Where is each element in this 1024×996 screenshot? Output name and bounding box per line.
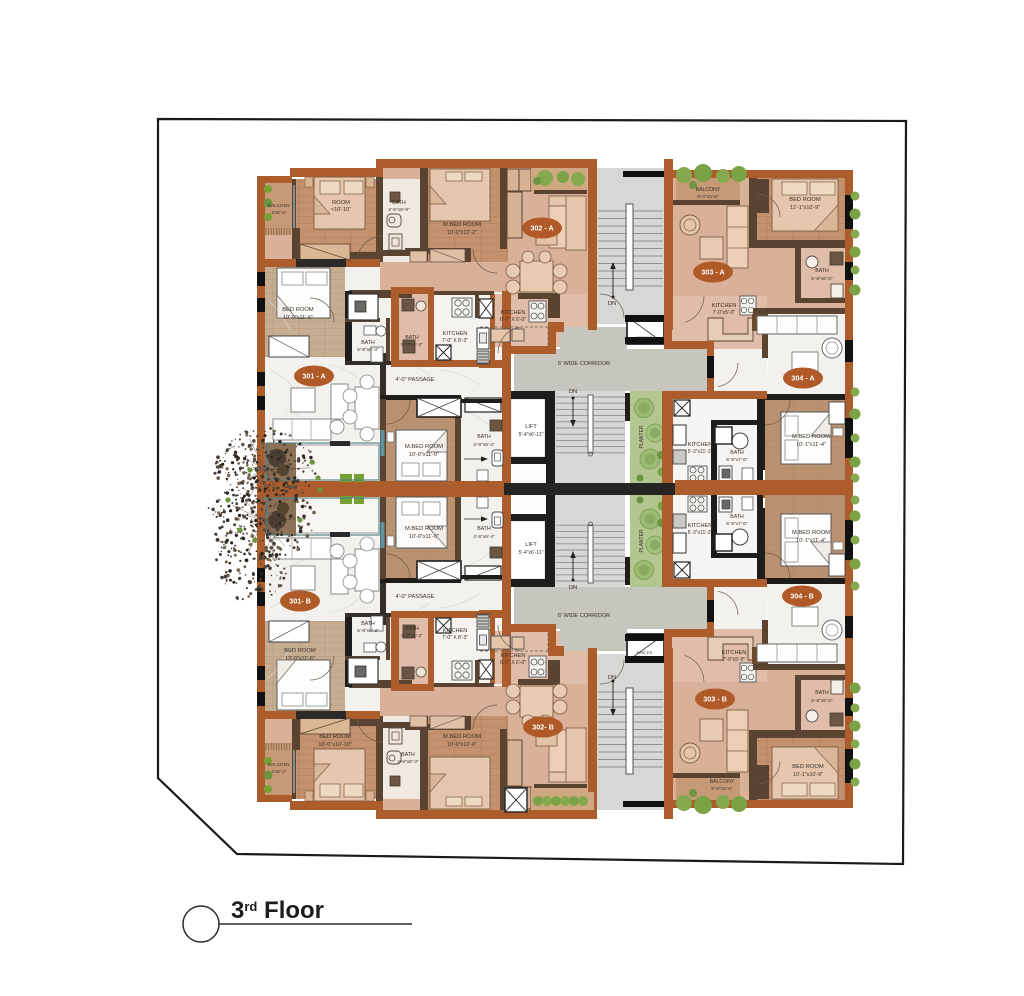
svg-text:6'-0"x3'-0": 6'-0"x3'-0": [697, 194, 719, 200]
svg-text:10'-0"x11'-0": 10'-0"x11'-0": [409, 534, 439, 540]
svg-text:5'-8"x8'-3": 5'-8"x8'-3": [357, 347, 379, 353]
svg-text:DN: DN: [608, 301, 616, 307]
svg-text:5'-8"x6'-0": 5'-8"x6'-0": [811, 698, 833, 704]
svg-text:LIFT: LIFT: [525, 424, 537, 430]
svg-text:6'-7" X 6'-0": 6'-7" X 6'-0": [500, 317, 526, 323]
svg-text:304 - B: 304 - B: [790, 592, 814, 601]
svg-text:BED ROOM: BED ROOM: [284, 648, 316, 654]
svg-text:BED ROOM: BED ROOM: [319, 734, 351, 740]
svg-text:BALCONY: BALCONY: [710, 779, 735, 785]
svg-text:BALCONY: BALCONY: [268, 203, 290, 208]
svg-text:M.BED ROOM: M.BED ROOM: [405, 526, 443, 532]
svg-text:4'-9"x9'-4": 4'-9"x9'-4": [473, 534, 495, 540]
svg-text:7'-0"x5'-0": 7'-0"x5'-0": [723, 657, 746, 663]
svg-text:10'-0"x10'-10": 10'-0"x10'-10": [318, 742, 351, 748]
svg-text:BED ROOM: BED ROOM: [282, 307, 314, 313]
svg-text:5'-9"x7'-0": 5'-9"x7'-0": [726, 521, 748, 527]
svg-text:2'x6'-3": 2'x6'-3": [272, 769, 287, 774]
svg-text:10'-0"x11'-0": 10'-0"x11'-0": [409, 452, 439, 458]
svg-text:BATH: BATH: [815, 690, 829, 696]
svg-text:7'-0" X 8'-3": 7'-0" X 8'-3": [442, 635, 468, 641]
svg-text:13'-0"x11'-6": 13'-0"x11'-6": [285, 656, 315, 662]
svg-text:PLANTER: PLANTER: [639, 425, 645, 448]
svg-text:2'x6'-3": 2'x6'-3": [272, 210, 287, 215]
svg-text:301- B: 301- B: [289, 597, 311, 606]
svg-text:KITCHEN: KITCHEN: [501, 310, 526, 316]
svg-text:10'-0"x12'-6": 10'-0"x12'-6": [447, 742, 477, 748]
svg-text:5'-3"x11'-2": 5'-3"x11'-2": [688, 530, 713, 536]
svg-text:302- B: 302- B: [532, 723, 554, 732]
svg-text:BATH: BATH: [730, 450, 744, 456]
svg-text:7'-0" X 8'-3": 7'-0" X 8'-3": [442, 338, 468, 344]
svg-text:DN: DN: [608, 675, 616, 681]
svg-text:DN: DN: [569, 585, 577, 591]
svg-text:FIRE ES.: FIRE ES.: [637, 335, 654, 340]
svg-text:5'-4"x6'-11": 5'-4"x6'-11": [519, 550, 544, 556]
svg-text:5'-8"x8'-3": 5'-8"x8'-3": [357, 628, 379, 634]
svg-text:BATH: BATH: [815, 268, 829, 274]
svg-text:KITCHEN: KITCHEN: [501, 653, 526, 659]
svg-text:4'-9"x9'-4": 4'-9"x9'-4": [473, 442, 495, 448]
svg-text:6'-0"x3'-0": 6'-0"x3'-0": [711, 786, 733, 792]
svg-text:303 - A: 303 - A: [701, 268, 724, 277]
svg-text:M.BED ROOM: M.BED ROOM: [443, 734, 481, 740]
svg-text:4'-0" PASSAGE: 4'-0" PASSAGE: [395, 377, 434, 383]
svg-text:10'-1"x11'-4": 10'-1"x11'-4": [796, 538, 826, 544]
svg-text:6'-7" X 6'-0": 6'-7" X 6'-0": [500, 660, 526, 666]
svg-text:LIFT: LIFT: [525, 542, 537, 548]
svg-text:FIRE ES.: FIRE ES.: [637, 650, 654, 655]
svg-text:BATH: BATH: [730, 514, 744, 520]
svg-text:KITCHEN: KITCHEN: [688, 523, 713, 529]
svg-text:BATH: BATH: [361, 340, 375, 346]
svg-text:BALCONY: BALCONY: [268, 762, 290, 767]
svg-text:KITCHEN: KITCHEN: [712, 303, 737, 309]
svg-text:7'-0"x5'-0": 7'-0"x5'-0": [713, 310, 736, 316]
svg-text:BATH: BATH: [361, 621, 375, 627]
svg-text:<10'-10": <10'-10": [331, 207, 351, 213]
svg-text:5'-4"x6'-11": 5'-4"x6'-11": [519, 432, 544, 438]
svg-text:KITCHEN: KITCHEN: [443, 628, 468, 634]
svg-text:5'-0"x8'-3": 5'-0"x8'-3": [401, 633, 423, 639]
svg-text:PLANTER: PLANTER: [639, 529, 645, 552]
svg-text:DN: DN: [569, 389, 577, 395]
svg-text:BALCONY: BALCONY: [696, 187, 721, 193]
svg-text:5'-9"x7'-0": 5'-9"x7'-0": [726, 457, 748, 463]
svg-text:BATH: BATH: [405, 335, 419, 341]
svg-text:10'-1"x10'-9": 10'-1"x10'-9": [793, 772, 823, 778]
svg-text:ROOM: ROOM: [332, 200, 350, 206]
svg-text:M.BED ROOM: M.BED ROOM: [792, 434, 830, 440]
svg-text:BATH: BATH: [405, 626, 419, 632]
svg-text:BED ROOM: BED ROOM: [792, 764, 824, 770]
svg-text:M.BED ROOM: M.BED ROOM: [405, 444, 443, 450]
svg-text:5'-0"x8'-3": 5'-0"x8'-3": [401, 342, 423, 348]
svg-text:304 - A: 304 - A: [791, 374, 814, 383]
svg-text:6' WIDE CORRIDOR: 6' WIDE CORRIDOR: [558, 613, 610, 619]
svg-text:KITCHEN: KITCHEN: [688, 442, 713, 448]
svg-text:BATH: BATH: [401, 752, 415, 758]
svg-text:4'-6"x8'-3": 4'-6"x8'-3": [397, 759, 419, 765]
svg-text:12'-1"x10'-9": 12'-1"x10'-9": [790, 205, 820, 211]
svg-text:302 - A: 302 - A: [530, 224, 553, 233]
svg-text:5'-3"x11'-2": 5'-3"x11'-2": [688, 449, 713, 455]
svg-text:BATH: BATH: [477, 526, 491, 532]
svg-text:4'-5"x8'-9": 4'-5"x8'-9": [388, 207, 410, 213]
svg-text:BATH: BATH: [477, 434, 491, 440]
svg-text:5'-8"x6'-0": 5'-8"x6'-0": [811, 276, 833, 282]
svg-text:10'-0"x11'-6": 10'-0"x11'-6": [283, 315, 313, 321]
svg-text:301 - A: 301 - A: [302, 372, 325, 381]
svg-text:303 - B: 303 - B: [703, 695, 727, 704]
svg-text:10'-1"x11'-4": 10'-1"x11'-4": [796, 442, 826, 448]
svg-text:KITCHEN: KITCHEN: [722, 650, 747, 656]
svg-text:BATH: BATH: [392, 200, 406, 206]
svg-text:M.BED ROOM: M.BED ROOM: [443, 222, 481, 228]
svg-text:4'-0" PASSAGE: 4'-0" PASSAGE: [395, 594, 434, 600]
svg-text:KITCHEN: KITCHEN: [443, 331, 468, 337]
svg-text:6' WIDE CORRIDOR: 6' WIDE CORRIDOR: [558, 361, 610, 367]
svg-text:M.BED ROOM: M.BED ROOM: [792, 530, 830, 536]
svg-text:10'-0"x12'-2": 10'-0"x12'-2": [447, 230, 477, 236]
svg-text:BED ROOM: BED ROOM: [789, 197, 821, 203]
